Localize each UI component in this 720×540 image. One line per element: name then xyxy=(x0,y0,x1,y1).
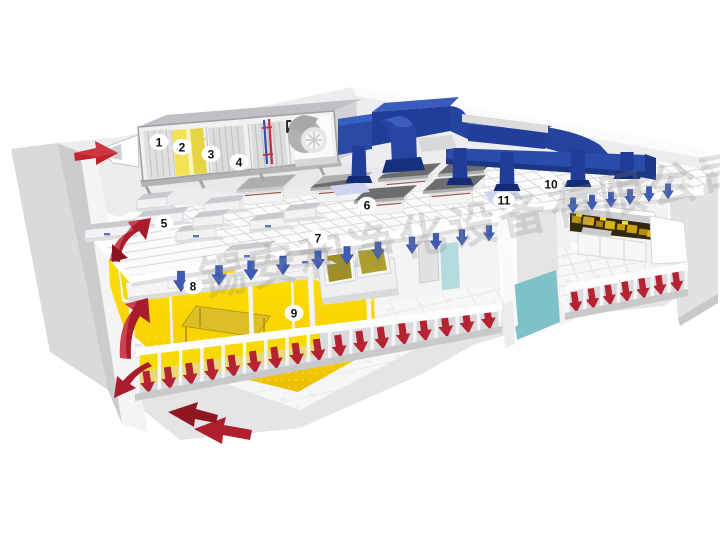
svg-text:1: 1 xyxy=(156,136,163,150)
svg-text:7: 7 xyxy=(315,232,322,246)
svg-text:9: 9 xyxy=(291,307,298,321)
svg-text:6: 6 xyxy=(364,199,371,213)
svg-text:3: 3 xyxy=(208,148,215,162)
svg-text:11: 11 xyxy=(498,194,511,208)
svg-text:8: 8 xyxy=(190,280,197,294)
svg-text:5: 5 xyxy=(161,217,168,231)
svg-text:2: 2 xyxy=(179,141,186,155)
svg-text:4: 4 xyxy=(236,156,243,170)
svg-text:10: 10 xyxy=(544,178,558,192)
